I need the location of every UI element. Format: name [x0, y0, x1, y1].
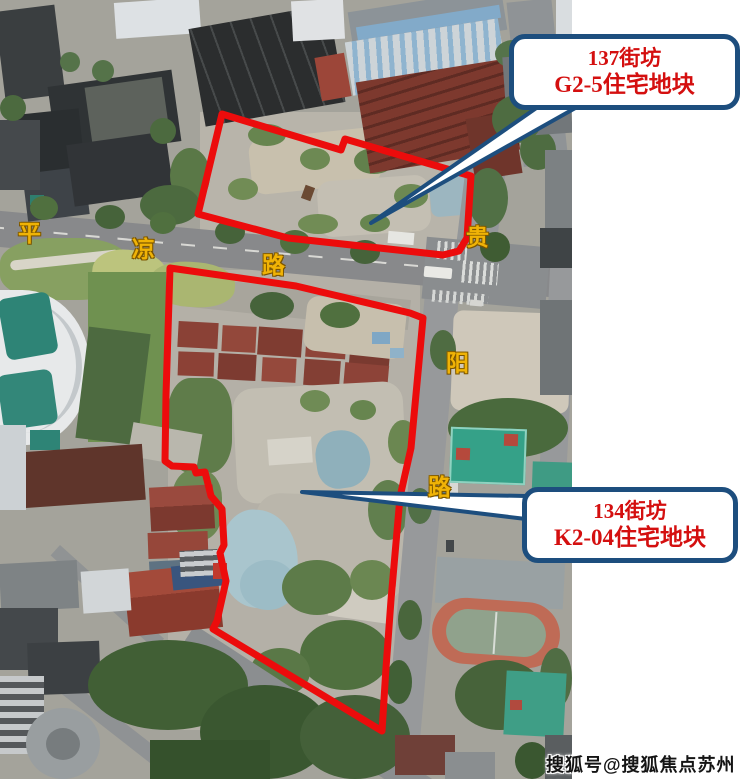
aerial-map-page: 平 凉 路 贵 阳 路 137街坊 G2-5住宅地块 134街坊 K2-04住宅…	[0, 0, 740, 779]
building	[540, 228, 572, 268]
parcel1-shrubs	[360, 214, 390, 232]
road-label-pingliang-char2: 凉	[132, 230, 155, 264]
road-label-pingliang-char3: 路	[262, 246, 285, 280]
parcel1-shrubs	[228, 178, 258, 200]
callout-parcel-g2-5-title: 137街坊	[588, 45, 662, 71]
parcel2-vegetation	[300, 390, 330, 412]
callout-parcel-k2-04-subtitle: K2-04住宅地块	[554, 524, 706, 553]
tree-grove	[150, 740, 270, 779]
car	[446, 540, 454, 552]
parcel2-white-debris	[267, 436, 313, 465]
tree	[386, 660, 412, 704]
tree	[250, 292, 294, 320]
parcel2-vegetation	[300, 620, 390, 690]
parcel1-shrubs	[298, 214, 338, 234]
crosswalk	[436, 241, 467, 262]
building-white	[114, 0, 201, 39]
callout-parcel-g2-5-subtitle: G2-5住宅地块	[554, 71, 695, 100]
rowhouse-roof	[303, 359, 341, 387]
natatorium-teal-roof	[30, 430, 60, 450]
building	[540, 300, 572, 395]
parcel1-shrubs	[300, 148, 330, 170]
parcel2-vegetation	[282, 560, 352, 615]
callout-parcel-k2-04: 134街坊 K2-04住宅地块	[522, 487, 738, 563]
round-building-core	[46, 728, 80, 760]
red-awning	[213, 563, 227, 579]
parcel1-shrubs	[394, 184, 428, 208]
parcel1-shrubs	[248, 124, 286, 146]
building-white	[0, 425, 26, 510]
court-key-red	[504, 434, 518, 446]
tree	[0, 95, 26, 121]
tree	[350, 240, 380, 264]
building	[0, 120, 40, 190]
rowhouse-roof	[257, 326, 303, 357]
building	[445, 752, 495, 779]
crosswalk	[461, 260, 499, 285]
building-white	[81, 568, 132, 613]
watermark-sohu: 搜狐号@搜狐焦点苏州站	[546, 751, 740, 779]
callout-parcel-g2-5: 137街坊 G2-5住宅地块	[509, 34, 740, 110]
natatorium-teal-roof	[0, 291, 59, 361]
tree	[95, 205, 125, 229]
rowhouse-roof	[178, 351, 215, 376]
tree	[215, 220, 245, 244]
car	[470, 299, 482, 306]
court-key-red	[510, 700, 522, 710]
road-label-guiyang-char2: 阳	[446, 344, 469, 378]
tree	[92, 60, 114, 82]
tree	[398, 600, 422, 640]
callout-parcel-k2-04-title: 134街坊	[593, 498, 667, 524]
building-white	[291, 0, 345, 41]
road-label-pingliang-char1: 平	[18, 214, 41, 248]
building	[0, 560, 79, 612]
truck	[388, 231, 415, 245]
aerial-photo	[0, 0, 572, 779]
natatorium-teal-roof	[0, 368, 59, 430]
red-tower-roof	[314, 53, 351, 102]
bus	[424, 266, 453, 279]
road-label-guiyang-char3: 路	[428, 468, 451, 502]
maroon-roof-building	[20, 444, 146, 508]
tree-grove	[300, 695, 410, 779]
parcel2-blue-tarp	[390, 348, 404, 358]
tree	[150, 118, 176, 144]
parcel2-blue-tarp	[372, 332, 390, 344]
parcel2-vegetation	[350, 560, 394, 600]
rowhouse-roof	[221, 325, 256, 353]
rowhouse-roof	[177, 321, 218, 349]
tree	[515, 742, 549, 779]
rowhouse-roof	[217, 353, 256, 381]
parcel2-vegetation	[368, 480, 408, 540]
parcel2-vegetation	[350, 400, 376, 420]
road-label-guiyang-char1: 贵	[466, 218, 489, 252]
tree	[320, 302, 360, 328]
court-key-red	[456, 448, 470, 460]
tree	[60, 52, 80, 72]
red-roof-building	[149, 484, 215, 531]
rowhouse-roof	[261, 357, 296, 383]
